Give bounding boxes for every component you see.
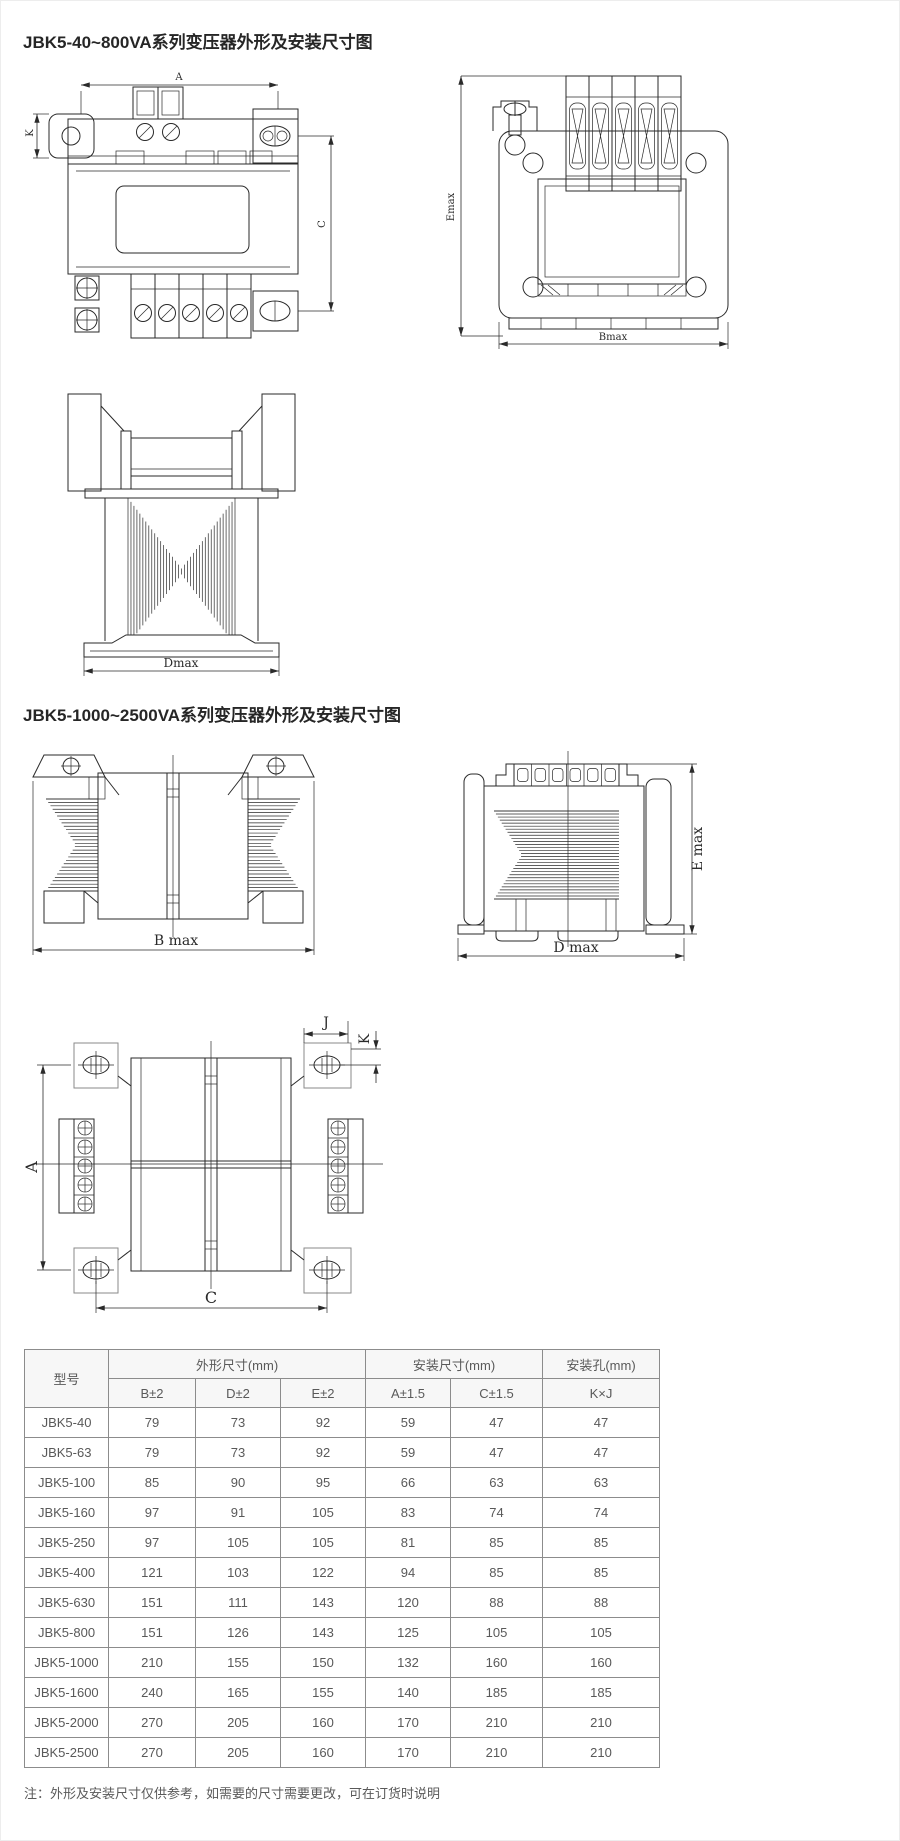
page: JBK5-40~800VA系列变压器外形及安装尺寸图 A (0, 0, 900, 1841)
screw-icon (135, 305, 248, 322)
dim-label-k: K (25, 129, 36, 137)
cell-c: 210 (451, 1738, 543, 1768)
dim-label-bmax: Bmax (599, 332, 628, 343)
table-row: JBK5-1000210155150132160160 (25, 1648, 660, 1678)
cell-b: 151 (109, 1588, 196, 1618)
col-header-e: E±2 (281, 1379, 366, 1408)
cell-b: 97 (109, 1528, 196, 1558)
cell-kj: 210 (543, 1738, 660, 1768)
cell-b: 270 (109, 1708, 196, 1738)
cell-a: 170 (366, 1738, 451, 1768)
slot-hole (309, 1256, 345, 1284)
table-row: JBK5-100859095666363 (25, 1468, 660, 1498)
col-header-d: D±2 (196, 1379, 281, 1408)
col-header-c: C±1.5 (451, 1379, 543, 1408)
cell-c: 160 (451, 1648, 543, 1678)
terminal-rollers (570, 103, 678, 169)
cell-d: 73 (196, 1438, 281, 1468)
screw-icon (331, 1121, 345, 1211)
col-header-a: A±1.5 (366, 1379, 451, 1408)
screw-icon (493, 101, 537, 155)
small-side-view-drawing: Emax (441, 57, 736, 359)
cell-model: JBK5-1000 (25, 1648, 109, 1678)
table-row: JBK5-2000270205160170210210 (25, 1708, 660, 1738)
large-side-view-drawing: E max D max (456, 749, 708, 975)
cell-c: 210 (451, 1708, 543, 1738)
dim-dmax: Dmax (84, 656, 279, 676)
cell-e: 150 (281, 1648, 366, 1678)
cell-e: 105 (281, 1498, 366, 1528)
dim-a: A (81, 72, 278, 114)
col-header-kj: K×J (543, 1379, 660, 1408)
cell-kj: 88 (543, 1588, 660, 1618)
cell-b: 85 (109, 1468, 196, 1498)
cell-d: 105 (196, 1528, 281, 1558)
dim-label-c: C (317, 220, 328, 228)
dim-bmax: Bmax (499, 322, 728, 349)
spec-table-body: JBK5-40797392594747JBK5-63797392594747JB… (25, 1408, 660, 1768)
cell-a: 125 (366, 1618, 451, 1648)
cell-b: 97 (109, 1498, 196, 1528)
table-row: JBK5-800151126143125105105 (25, 1618, 660, 1648)
section2-title: JBK5-1000~2500VA系列变压器外形及安装尺寸图 (23, 701, 401, 726)
foot-blocks (44, 891, 303, 923)
cell-kj: 185 (543, 1678, 660, 1708)
table-row: JBK5-25097105105818585 (25, 1528, 660, 1558)
cell-a: 170 (366, 1708, 451, 1738)
cell-kj: 74 (543, 1498, 660, 1528)
cell-kj: 47 (543, 1438, 660, 1468)
cell-b: 210 (109, 1648, 196, 1678)
slot-hole (309, 1051, 345, 1079)
cell-model: JBK5-1600 (25, 1678, 109, 1708)
table-row: JBK5-2500270205160170210210 (25, 1738, 660, 1768)
cell-d: 103 (196, 1558, 281, 1588)
cell-b: 151 (109, 1618, 196, 1648)
mount-brackets (33, 755, 314, 799)
dim-j: J (304, 1015, 348, 1043)
screw-icon (137, 124, 180, 141)
mounting-plate (85, 489, 278, 498)
cell-model: JBK5-63 (25, 1438, 109, 1468)
cell-a: 132 (366, 1648, 451, 1678)
cell-e: 160 (281, 1708, 366, 1738)
cell-model: JBK5-2500 (25, 1738, 109, 1768)
cell-e: 92 (281, 1408, 366, 1438)
cell-kj: 160 (543, 1648, 660, 1678)
dim-k: K (340, 1031, 381, 1083)
colgroup-outline-size: 外形尺寸(mm) (109, 1350, 366, 1379)
mount-plate (499, 131, 728, 318)
terminal-strip-right (328, 1119, 363, 1213)
cell-b: 79 (109, 1408, 196, 1438)
cell-a: 59 (366, 1408, 451, 1438)
dim-bmax: B max (33, 781, 314, 955)
dim-emax: Emax (446, 76, 566, 336)
table-row: JBK5-63797392594747 (25, 1438, 660, 1468)
cell-kj: 85 (543, 1558, 660, 1588)
cell-c: 63 (451, 1468, 543, 1498)
top-terminal-block (133, 87, 183, 119)
cell-b: 121 (109, 1558, 196, 1588)
slot-hole (78, 1051, 114, 1079)
col-header-b: B±2 (109, 1379, 196, 1408)
feet (509, 318, 718, 329)
table-row: JBK5-6301511111431208888 (25, 1588, 660, 1618)
cell-d: 155 (196, 1648, 281, 1678)
dim-label-k: K (357, 1033, 373, 1044)
cell-e: 122 (281, 1558, 366, 1588)
terminal-row (496, 764, 638, 786)
foot-bracket (84, 635, 279, 657)
colgroup-mount-hole: 安装孔(mm) (543, 1350, 660, 1379)
dim-label-emax: E max (690, 827, 706, 871)
right-mount-flange-bottom (253, 291, 334, 331)
table-row: JBK5-1600240165155140185185 (25, 1678, 660, 1708)
col-header-model: 型号 (25, 1350, 109, 1408)
cell-b: 270 (109, 1738, 196, 1768)
screw-icon (78, 1121, 92, 1211)
footnote: 注：外形及安装尺寸仅供参考，如需要的尺寸需要更改，可在订货时说明 (24, 1783, 440, 1802)
ground-screws (75, 276, 99, 332)
cell-b: 240 (109, 1678, 196, 1708)
cell-e: 160 (281, 1738, 366, 1768)
cell-d: 111 (196, 1588, 281, 1618)
cell-model: JBK5-100 (25, 1468, 109, 1498)
cell-kj: 105 (543, 1618, 660, 1648)
cell-e: 143 (281, 1588, 366, 1618)
cell-e: 143 (281, 1618, 366, 1648)
table-row: JBK5-40797392594747 (25, 1408, 660, 1438)
cell-c: 88 (451, 1588, 543, 1618)
dim-c: C (317, 136, 331, 311)
right-mount-flange-top (253, 109, 334, 163)
bottom-terminal-strip (131, 274, 251, 338)
cell-d: 165 (196, 1678, 281, 1708)
cell-d: 73 (196, 1408, 281, 1438)
dim-label-c: C (205, 1288, 217, 1307)
cell-model: JBK5-250 (25, 1528, 109, 1558)
cell-model: JBK5-630 (25, 1588, 109, 1618)
cell-model: JBK5-400 (25, 1558, 109, 1588)
cell-c: 47 (451, 1408, 543, 1438)
large-top-view-drawing: A C J K (29, 1001, 391, 1323)
cell-a: 81 (366, 1528, 451, 1558)
cell-a: 140 (366, 1678, 451, 1708)
terminal-strip-left (59, 1119, 94, 1213)
dim-label-a: A (174, 72, 183, 83)
large-front-view-drawing: B max (31, 749, 316, 965)
colgroup-install-size: 安装尺寸(mm) (366, 1350, 543, 1379)
table-row: JBK5-400121103122948585 (25, 1558, 660, 1588)
cell-kj: 63 (543, 1468, 660, 1498)
dim-c: C (96, 1281, 327, 1313)
cell-a: 83 (366, 1498, 451, 1528)
cell-c: 85 (451, 1528, 543, 1558)
cell-a: 120 (366, 1588, 451, 1618)
cell-model: JBK5-2000 (25, 1708, 109, 1738)
dim-label-dmax: D max (553, 940, 598, 956)
cell-d: 205 (196, 1738, 281, 1768)
dim-a: A (22, 1065, 71, 1270)
cell-a: 59 (366, 1438, 451, 1468)
dim-label-emax: Emax (446, 192, 457, 221)
cell-a: 66 (366, 1468, 451, 1498)
left-mount-tab (49, 114, 94, 158)
winding-hatch-left (46, 799, 98, 891)
cell-e: 92 (281, 1438, 366, 1468)
cell-a: 94 (366, 1558, 451, 1588)
cell-kj: 85 (543, 1528, 660, 1558)
dim-k: K (25, 114, 49, 158)
winding-hatch (494, 811, 619, 899)
cell-d: 205 (196, 1708, 281, 1738)
cell-kj: 210 (543, 1708, 660, 1738)
cell-e: 105 (281, 1528, 366, 1558)
cell-kj: 47 (543, 1408, 660, 1438)
top-brackets (68, 394, 295, 491)
cell-model: JBK5-160 (25, 1498, 109, 1528)
dim-label-j: J (321, 1015, 329, 1031)
body (458, 774, 684, 941)
table-row: JBK5-1609791105837474 (25, 1498, 660, 1528)
dim-label-a: A (22, 1161, 41, 1174)
dim-dmax: D max (458, 938, 684, 961)
winding-hatch (128, 498, 235, 645)
main-body (68, 164, 298, 274)
slot-hole (78, 1256, 114, 1284)
cell-model: JBK5-800 (25, 1618, 109, 1648)
core-block (98, 755, 248, 937)
cell-c: 185 (451, 1678, 543, 1708)
cell-d: 90 (196, 1468, 281, 1498)
cell-e: 155 (281, 1678, 366, 1708)
cell-c: 47 (451, 1438, 543, 1468)
section1-title: JBK5-40~800VA系列变压器外形及安装尺寸图 (23, 28, 373, 53)
small-front-view-drawing: A K (28, 57, 338, 349)
dim-emax: E max (627, 764, 706, 934)
dim-label-dmax: Dmax (164, 656, 199, 670)
cell-d: 126 (196, 1618, 281, 1648)
cell-model: JBK5-40 (25, 1408, 109, 1438)
cell-c: 105 (451, 1618, 543, 1648)
cell-d: 91 (196, 1498, 281, 1528)
cell-c: 74 (451, 1498, 543, 1528)
core-top-band (68, 119, 298, 164)
spec-table: 型号 外形尺寸(mm) 安装尺寸(mm) 安装孔(mm) B±2 D±2 E±2… (24, 1349, 660, 1768)
cell-c: 85 (451, 1558, 543, 1588)
dim-label-bmax: B max (154, 933, 198, 949)
cell-e: 95 (281, 1468, 366, 1498)
core-window (538, 179, 686, 296)
terminal-block (566, 76, 681, 191)
cell-b: 79 (109, 1438, 196, 1468)
winding-hatch-right (248, 799, 300, 891)
small-winding-view-drawing: Dmax (59, 391, 304, 687)
